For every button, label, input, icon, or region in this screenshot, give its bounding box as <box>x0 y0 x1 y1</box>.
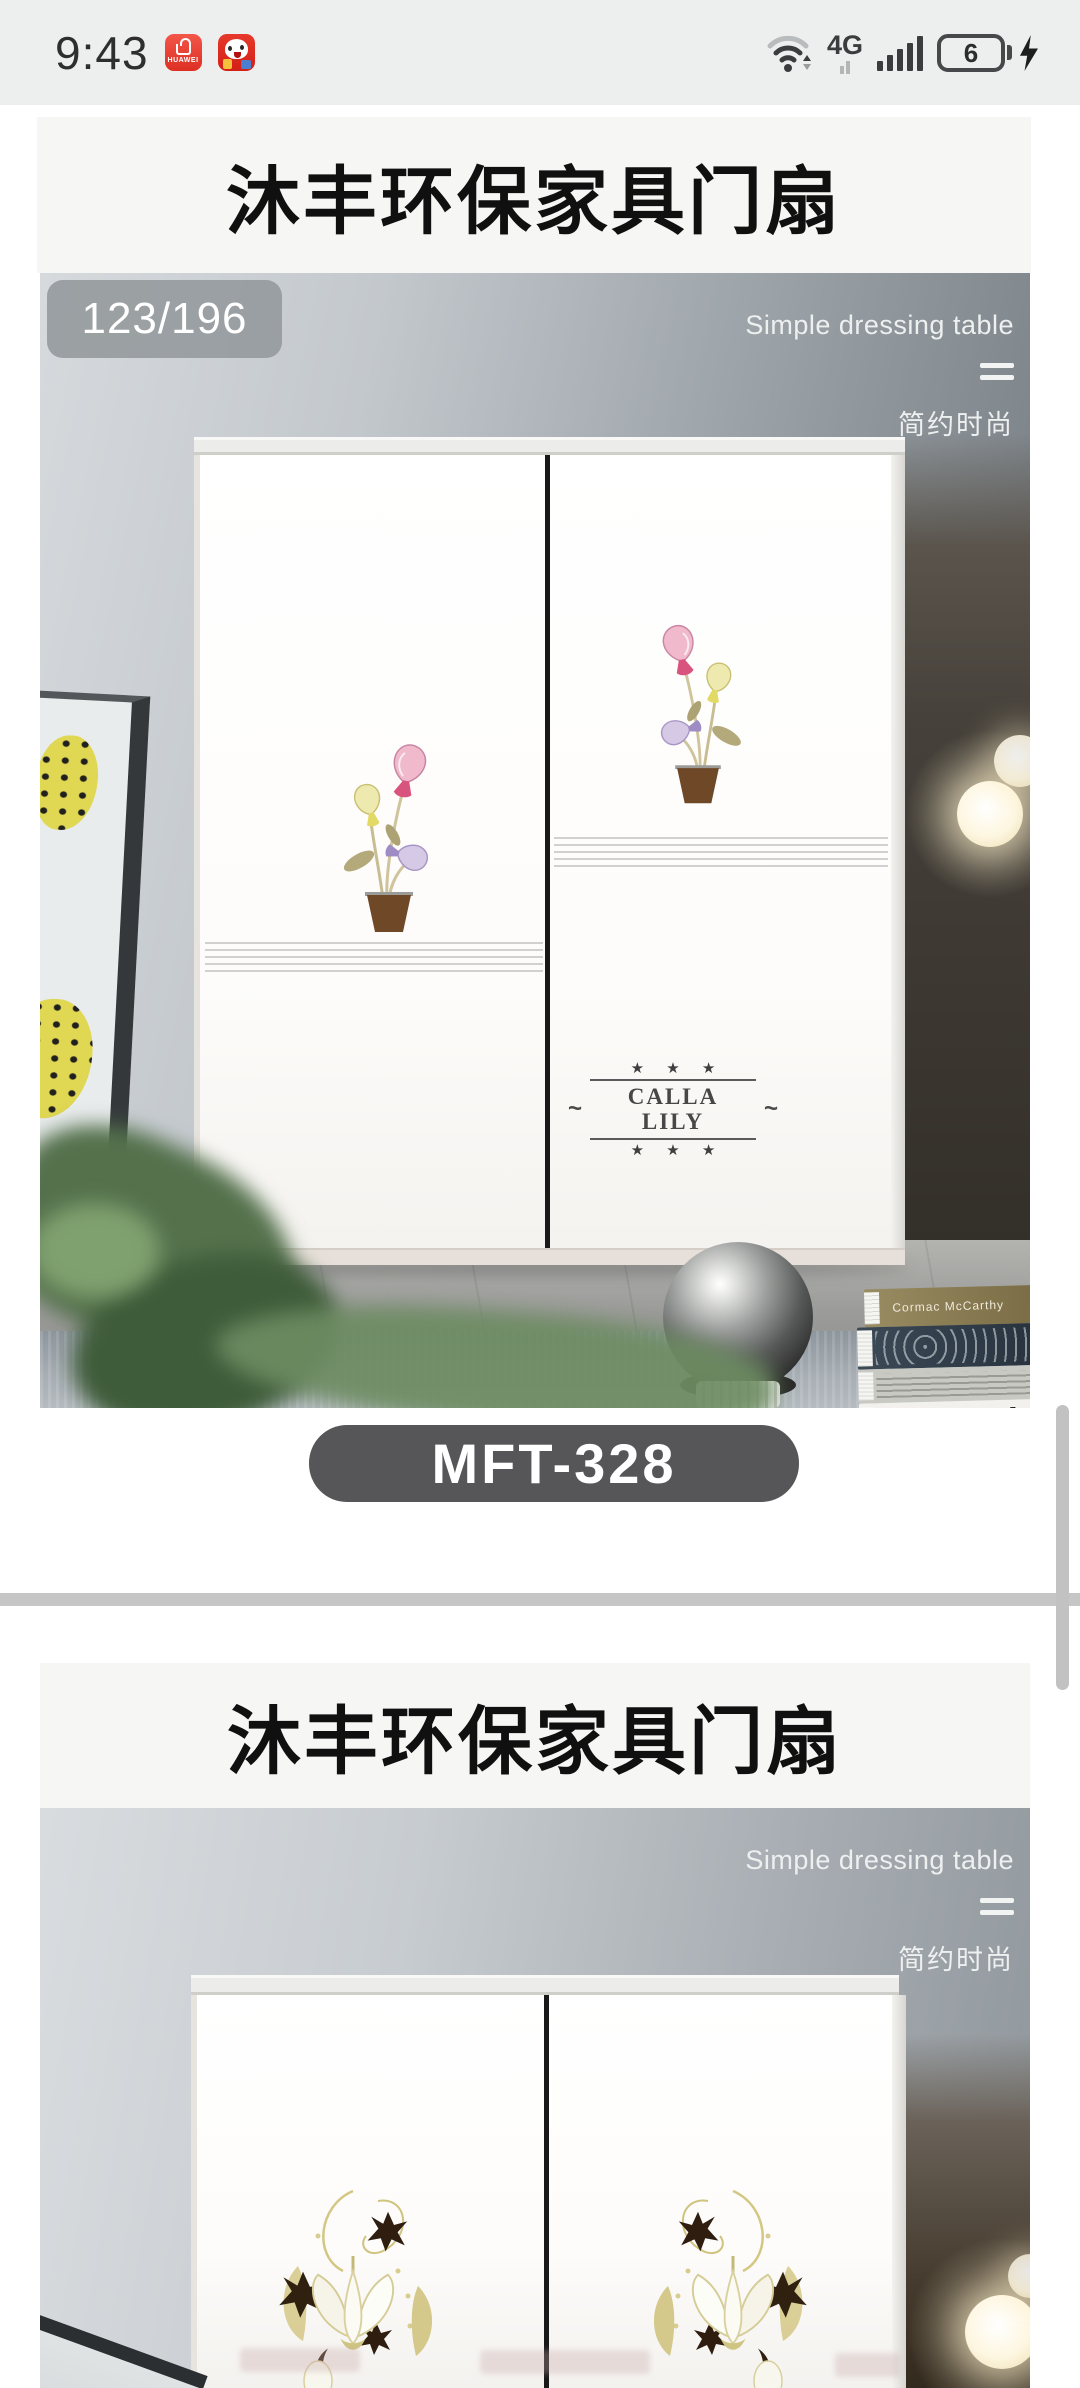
card1-title: 沐丰环保家具门扇 <box>226 142 842 249</box>
caption-english: Simple dressing table <box>745 1844 1014 1876</box>
network-indicator: 4G <box>827 32 863 74</box>
caption-chinese: 简约时尚 <box>745 403 1014 442</box>
product-photo-2[interactable]: Simple dressing table 简约时尚 <box>40 1808 1030 2388</box>
battery-level: 6 <box>964 40 978 66</box>
calla-lily-text: CALLA LILY <box>590 1079 756 1140</box>
calla-lily-label: ★ ★ ★ ~ CALLA LILY ~ ★ ★ ★ <box>568 1061 778 1158</box>
card2-header: 沐丰环保家具门扇 <box>40 1663 1030 1808</box>
secondary-signal-icon <box>840 61 850 74</box>
tulip-decal-right <box>628 2176 828 2388</box>
jd-app-icon <box>218 34 255 71</box>
light-orb <box>957 781 1023 847</box>
wardrobe-top <box>191 1975 899 1995</box>
network-type-label: 4G <box>827 32 863 59</box>
phone-screen: 9:43 HUAWEI 4G <box>0 0 1080 2388</box>
battery-icon: 6 <box>937 34 1005 72</box>
bird-title-text: Bird <box>979 1400 1030 1408</box>
caption-english: Simple dressing table <box>745 309 1014 341</box>
book-author-text: Cormac McCarthy <box>892 1298 1004 1315</box>
wifi-icon <box>763 31 813 75</box>
shopping-bag-icon <box>176 44 191 55</box>
status-time: 9:43 <box>55 30 149 76</box>
equals-menu-icon <box>980 1898 1014 1915</box>
charging-bolt-icon <box>1018 35 1040 71</box>
model-number-badge: MFT-328 <box>309 1425 799 1502</box>
image-counter-badge: 123/196 <box>47 280 282 358</box>
left-door-stripes <box>205 942 543 974</box>
huawei-appgallery-icon: HUAWEI <box>165 34 202 71</box>
book-top: Cormac McCarthy <box>864 1285 1030 1327</box>
caption-chinese: 简约时尚 <box>745 1938 1014 1977</box>
scrollbar-thumb[interactable] <box>1056 1405 1069 1690</box>
status-bar: 9:43 HUAWEI 4G <box>0 0 1080 105</box>
card-divider <box>0 1593 1080 1606</box>
equals-menu-icon <box>980 363 1014 380</box>
light-orb <box>965 2295 1030 2369</box>
calla-flower-decal-left <box>328 737 450 937</box>
signal-bars-icon <box>877 35 923 71</box>
product-photo-1[interactable]: ★ ★ ★ ~ CALLA LILY ~ ★ ★ ★ Cormac McCart… <box>40 273 1030 1408</box>
book-stack: Cormac McCarthy Andrew Zuckerman Bird <box>856 1284 1030 1408</box>
right-door-stripes <box>554 837 888 867</box>
photo1-caption: Simple dressing table 简约时尚 <box>745 309 1014 442</box>
photo2-caption: Simple dressing table 简约时尚 <box>745 1844 1014 1977</box>
calla-flower-decal-right <box>640 618 756 808</box>
card2-title: 沐丰环保家具门扇 <box>227 1682 843 1789</box>
card1-header: 沐丰环保家具门扇 <box>37 117 1031 273</box>
